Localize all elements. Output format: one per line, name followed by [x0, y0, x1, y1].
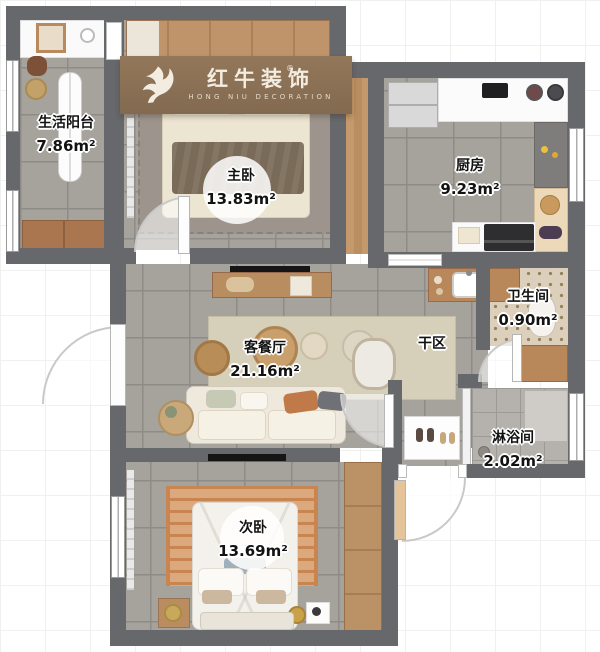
plant-leaves: [165, 406, 177, 418]
sink-bowl-2: [547, 84, 564, 101]
wall-living-left-upper: [110, 264, 126, 326]
bedroom2-pillow-tan-1: [202, 590, 232, 604]
oven: [484, 224, 534, 251]
side-table: [194, 340, 230, 376]
stove-food-dot-1: [541, 146, 548, 153]
washing-machine: [36, 23, 66, 53]
label-balcony: 生活阳台 7.86m²: [36, 113, 95, 158]
entry-door-arc: [402, 478, 466, 542]
vanity-bottle-2: [436, 288, 443, 295]
west-door-leaf: [110, 324, 126, 406]
shower-window: [569, 393, 584, 461]
sofa-seat-1: [198, 410, 266, 440]
west-door-arc: [42, 326, 120, 404]
console-decor-box: [290, 276, 312, 296]
entry-door-frame-left: [398, 464, 407, 478]
kettle: [539, 226, 562, 239]
laundry-cabinet: [518, 345, 568, 382]
plant-side-table: [158, 400, 194, 436]
wall-master-bottom-right: [190, 248, 346, 264]
nightstand-tray: [164, 604, 182, 622]
wall-bathroom-left: [476, 262, 490, 350]
tv-screen: [230, 266, 310, 272]
vanity-bottle-1: [434, 276, 442, 284]
registered-mark: ®: [286, 64, 294, 73]
master-curtain: [127, 118, 134, 218]
kitchen-counter-right-stove: [534, 122, 568, 188]
shower-glass-panel: [462, 388, 471, 466]
console-pillow: [226, 277, 254, 292]
master-wardrobe-shelf: [127, 21, 159, 57]
vanity-faucet: [466, 270, 472, 276]
wall-kitchen-left: [368, 62, 384, 268]
brand-banner: ® 红牛装饰 HONG NIU DECORATION: [120, 56, 352, 114]
balcony-cabinet: [22, 220, 106, 250]
slipper-1: [440, 432, 446, 444]
label-living-dining: 客餐厅 21.16m²: [230, 338, 300, 383]
bedroom2-curtain: [127, 470, 134, 590]
bedroom2-bench: [200, 612, 294, 630]
kitchen-plates: [458, 227, 480, 244]
cutting-board: [540, 195, 560, 215]
label-bathroom: 卫生间 0.90m²: [498, 287, 557, 332]
basket: [25, 78, 47, 100]
balcony-bedroom-door: [106, 22, 122, 60]
master-bedroom-door-leaf: [178, 196, 190, 254]
bedroom2-tv-screen: [208, 454, 286, 461]
sink-bowl-1: [526, 84, 543, 101]
cooktop: [482, 83, 508, 98]
wall-bedroom2-bottom: [110, 630, 398, 646]
kitchen-sliding-door: [388, 254, 442, 266]
kitchen-window: [569, 128, 584, 202]
stove-food-dot-2: [552, 152, 558, 158]
label-kitchen: 厨房 9.23m²: [440, 156, 499, 201]
plant-pot: [27, 56, 47, 76]
slipper-2: [449, 432, 455, 444]
sofa-pillow-white: [240, 392, 268, 410]
wall-bedroom2-right: [382, 448, 398, 646]
bedroom2-wardrobe: [344, 462, 382, 632]
bedroom2-pillow-tan-2: [256, 590, 286, 604]
label-shower: 淋浴间 2.02m²: [483, 428, 542, 473]
wall-master-right: [330, 6, 346, 256]
entry-door-frame-right: [458, 464, 467, 478]
laundry-sink: [80, 28, 95, 43]
bull-logo-icon: [138, 63, 178, 107]
brand-subtitle: HONG NIU DECORATION: [188, 93, 333, 101]
shoe-1: [416, 428, 423, 442]
label-dry-area: 干区: [418, 334, 446, 356]
label-master-bedroom: 主卧 13.83m²: [206, 166, 276, 211]
wall-balcony-bottom: [6, 248, 126, 264]
wet-zone-door-leaf: [512, 334, 522, 382]
brand-name: 红牛装饰: [188, 69, 333, 90]
nightstand-card-dot: [312, 607, 321, 616]
label-second-bedroom: 次卧 13.69m²: [218, 518, 288, 563]
balcony-window-upper: [6, 60, 19, 132]
bedroom2-window: [111, 496, 125, 578]
wall-living-left-lower: [110, 404, 126, 452]
shoe-2: [427, 428, 434, 442]
balcony-window-lower: [6, 190, 19, 252]
sofa-pillow-sage: [206, 390, 236, 408]
coffee-table-small: [300, 332, 328, 360]
entry-door-leaf: [394, 480, 406, 540]
floor-plan: ® 红牛装饰 HONG NIU DECORATION 生活阳台 7.86m² 主…: [0, 0, 600, 652]
wall-top: [6, 6, 346, 20]
sofa-seat-2: [268, 410, 336, 440]
bedroom2-door-leaf: [384, 394, 394, 448]
fridge: [388, 82, 438, 128]
